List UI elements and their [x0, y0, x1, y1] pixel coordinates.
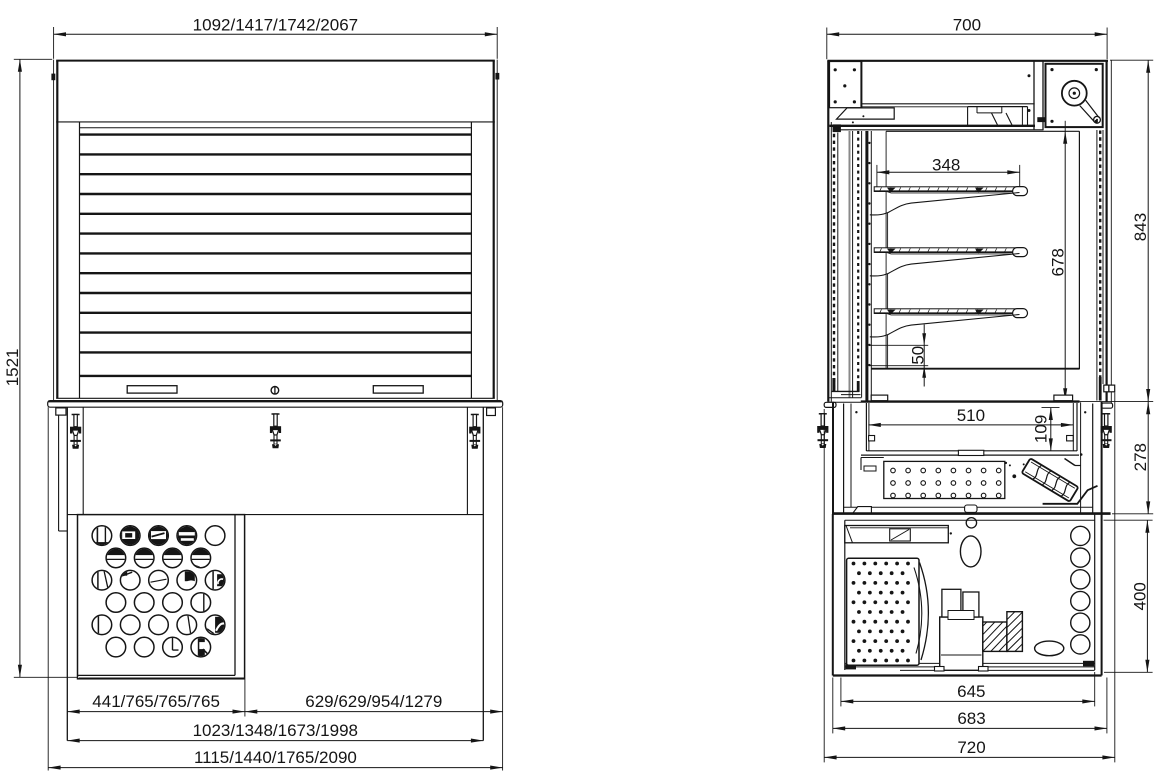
svg-text:700: 700: [953, 16, 981, 35]
svg-text:1115/1440/1765/2090: 1115/1440/1765/2090: [194, 748, 357, 767]
svg-text:1521: 1521: [3, 348, 22, 386]
svg-text:645: 645: [957, 682, 985, 701]
svg-text:348: 348: [932, 155, 960, 174]
svg-text:278: 278: [1131, 443, 1150, 471]
svg-text:441/765/765/765: 441/765/765/765: [92, 692, 220, 711]
svg-text:1023/1348/1673/1998: 1023/1348/1673/1998: [193, 721, 358, 740]
svg-text:843: 843: [1131, 213, 1150, 241]
svg-text:678: 678: [1049, 248, 1068, 276]
svg-text:1092/1417/1742/2067: 1092/1417/1742/2067: [193, 16, 358, 35]
svg-text:400: 400: [1130, 582, 1149, 610]
svg-text:629/629/954/1279: 629/629/954/1279: [305, 692, 442, 711]
svg-text:683: 683: [957, 709, 985, 728]
svg-text:50: 50: [909, 346, 928, 365]
svg-text:109: 109: [1032, 415, 1051, 443]
svg-text:510: 510: [957, 406, 985, 425]
svg-text:720: 720: [957, 738, 985, 757]
